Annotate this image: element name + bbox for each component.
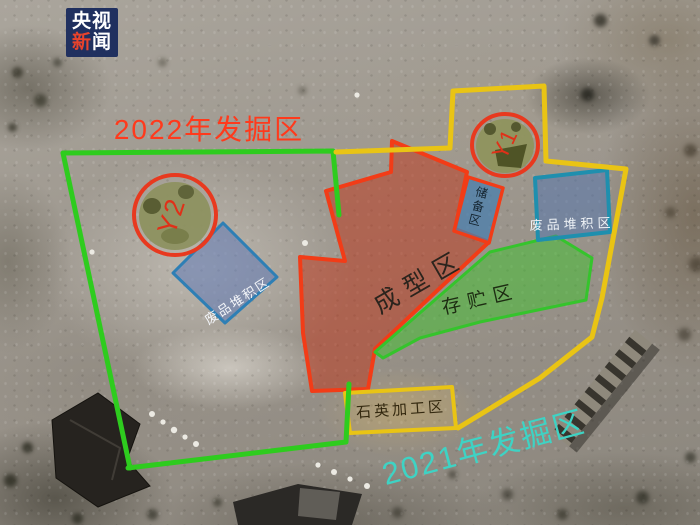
pit-y1-hole [484,123,496,135]
pit-y1-hole [511,122,521,132]
zone-waste-right-polygon [535,170,610,240]
pit-y2-hole [178,185,194,199]
logo-char-red: 新 [72,32,92,53]
pit-y2-hole [143,198,161,214]
tarp-small [233,484,362,525]
logo-char-white: 闻 [92,32,112,53]
pit-y1-photo [476,119,534,173]
zone-quartz-polygon [345,387,456,433]
zone-forming-polygon [300,141,489,391]
annotation-overlay [0,0,700,525]
boundary-2022-lower [128,384,349,468]
stairway [552,330,660,453]
cctv-news-logo: 央视 新闻 [66,8,118,57]
aerial-site-photo: 2022年发掘区 2021年发掘区 成型区 存贮区 废品堆积区 废品堆积区 石英… [0,0,700,525]
tarp-large [52,393,150,507]
pit-y2-shade [161,228,189,244]
logo-line2: 新闻 [72,32,112,53]
pit-y2-photo [139,182,211,250]
tarp-grey-sheet [298,488,340,520]
logo-line1: 央视 [72,11,112,32]
